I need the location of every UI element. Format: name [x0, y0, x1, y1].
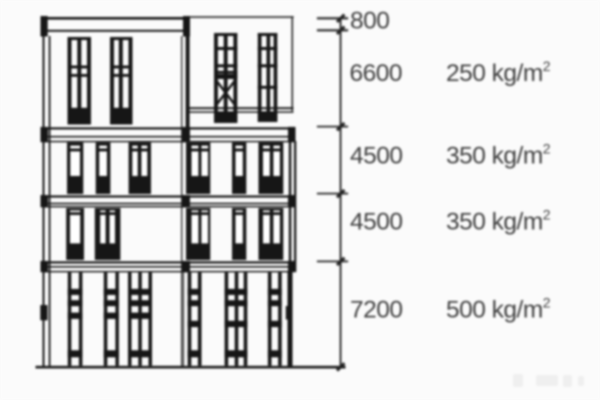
svg-text:350 kg/m2: 350 kg/m2	[446, 141, 551, 170]
svg-text:7200: 7200	[350, 297, 403, 324]
svg-text:500 kg/m2: 500 kg/m2	[446, 295, 551, 324]
svg-text:800: 800	[350, 7, 389, 34]
svg-text:350 kg/m2: 350 kg/m2	[446, 207, 551, 236]
svg-text:250 kg/m2: 250 kg/m2	[446, 58, 551, 87]
svg-text:4500: 4500	[350, 143, 403, 170]
svg-text:6600: 6600	[350, 60, 403, 87]
svg-text:4500: 4500	[350, 209, 403, 236]
